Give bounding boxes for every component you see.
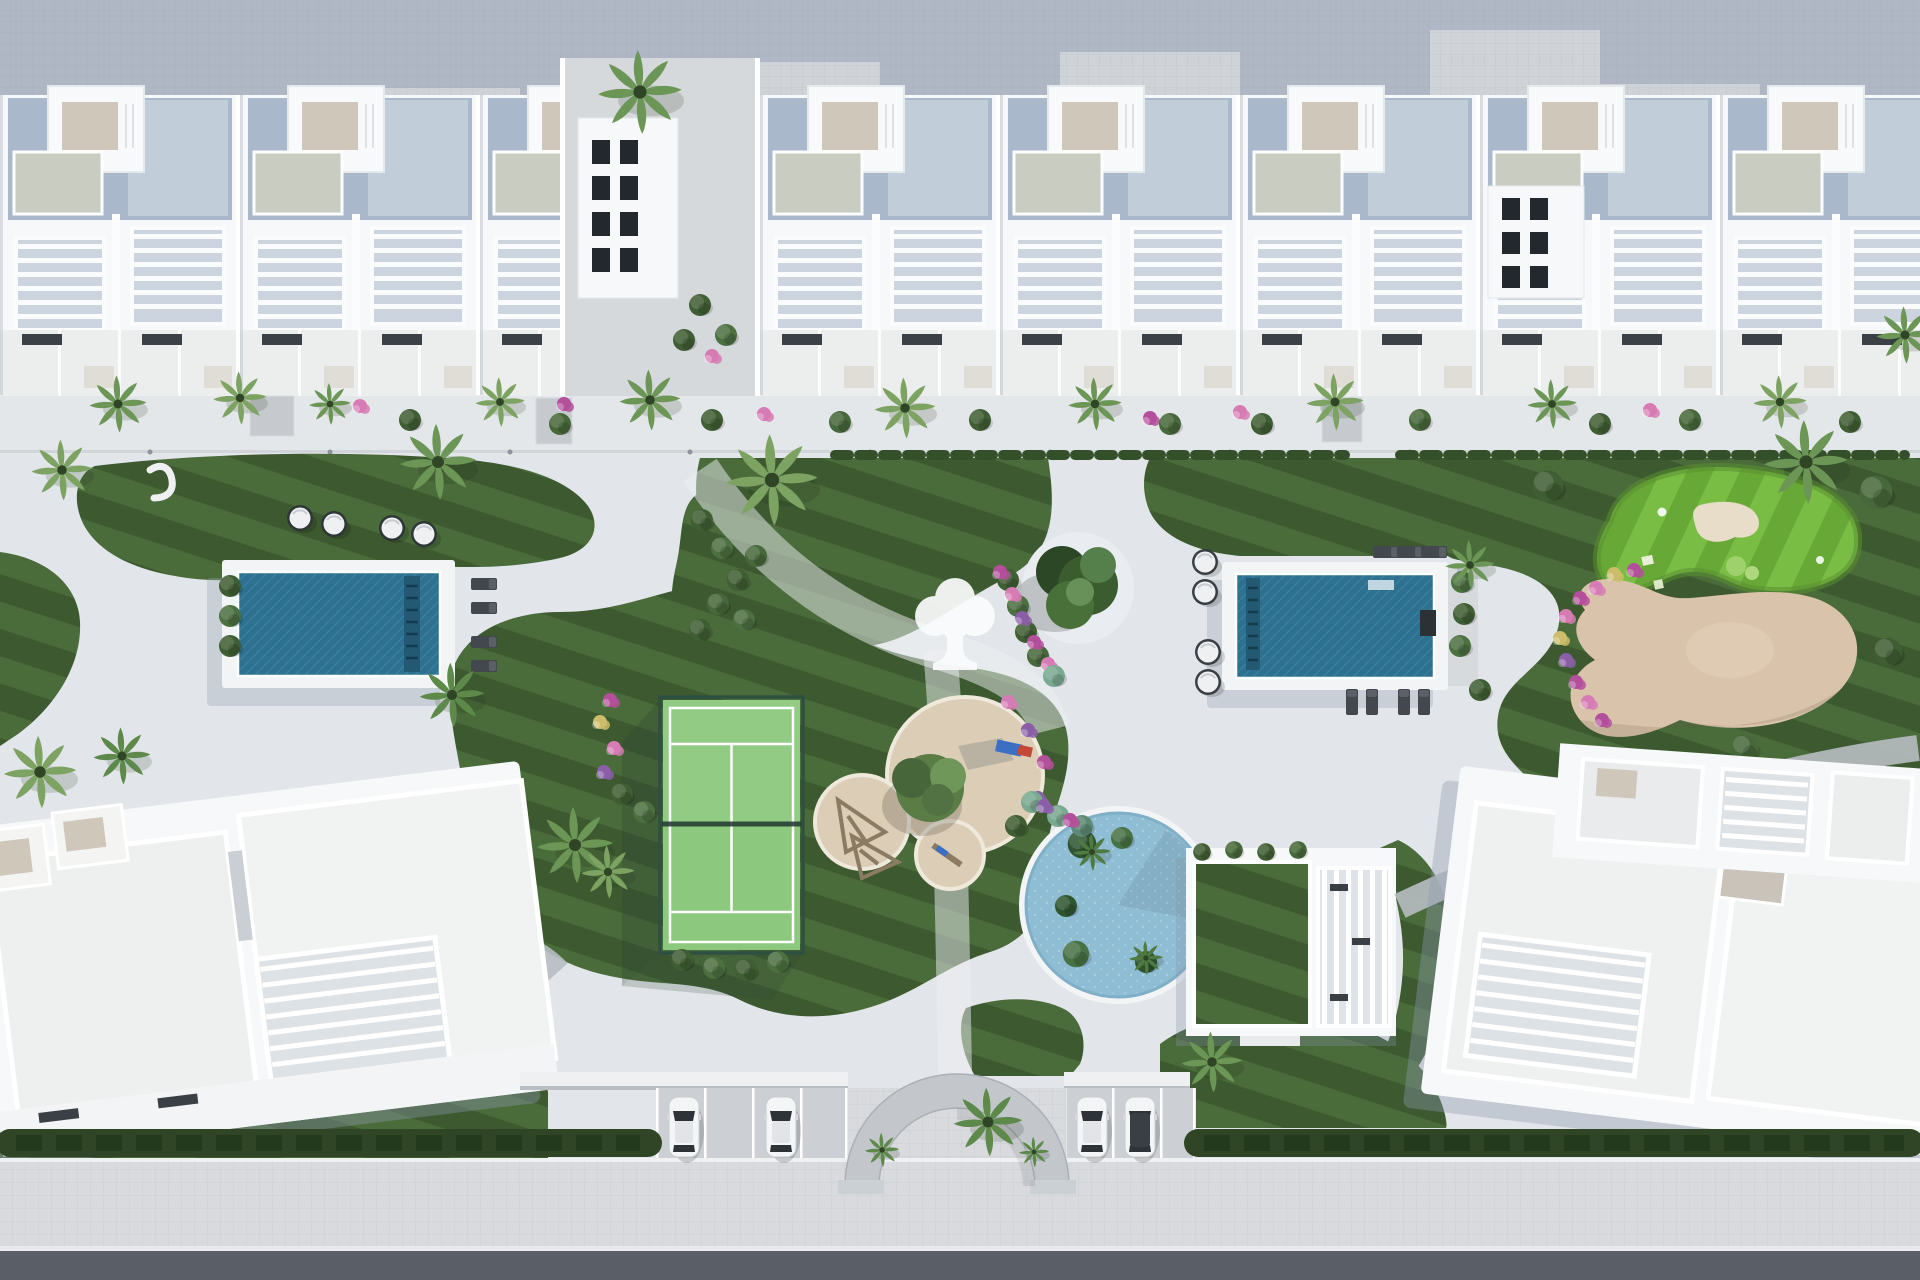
sun-lounger — [471, 602, 497, 614]
sun-lounger — [1366, 689, 1378, 715]
golf-hole — [1658, 508, 1667, 517]
sun-lounger — [471, 660, 497, 672]
sun-lounger — [1373, 546, 1399, 558]
golf-hole — [1816, 556, 1824, 564]
apartment-block-left — [0, 756, 559, 1171]
block-pergola — [1465, 934, 1649, 1076]
sidewalk — [0, 1162, 1920, 1250]
clubhouse — [1176, 841, 1396, 1046]
lawn-below-lagoon — [961, 999, 1084, 1076]
stair-tower-right — [1488, 186, 1584, 298]
sun-lounger — [471, 636, 497, 648]
sun-lounger — [1398, 689, 1410, 715]
garden-band — [0, 396, 1920, 456]
car-van-dark-roof — [1123, 1097, 1160, 1163]
sun-lounger — [1397, 546, 1423, 558]
lap-pool-right — [1207, 546, 1478, 715]
apartment-block-right — [1403, 743, 1920, 1170]
car-white-1 — [667, 1097, 704, 1163]
car-white-2 — [764, 1097, 801, 1163]
townhouse-row — [0, 58, 1920, 396]
sun-lounger — [1346, 689, 1358, 715]
sun-lounger — [1418, 689, 1430, 715]
sun-lounger — [471, 578, 497, 590]
pool-water — [1236, 574, 1434, 678]
aerial-masterplan-render — [0, 0, 1920, 1280]
clubhouse-pergola — [1318, 868, 1390, 1026]
road — [0, 1251, 1920, 1280]
sun-lounger — [1421, 546, 1447, 558]
stair-tower — [578, 118, 678, 298]
car-white-3 — [1075, 1097, 1112, 1163]
towel-kiosk — [1420, 610, 1436, 636]
clubhouse-green-roof — [1194, 862, 1310, 1026]
underwater-bench — [1368, 580, 1394, 590]
